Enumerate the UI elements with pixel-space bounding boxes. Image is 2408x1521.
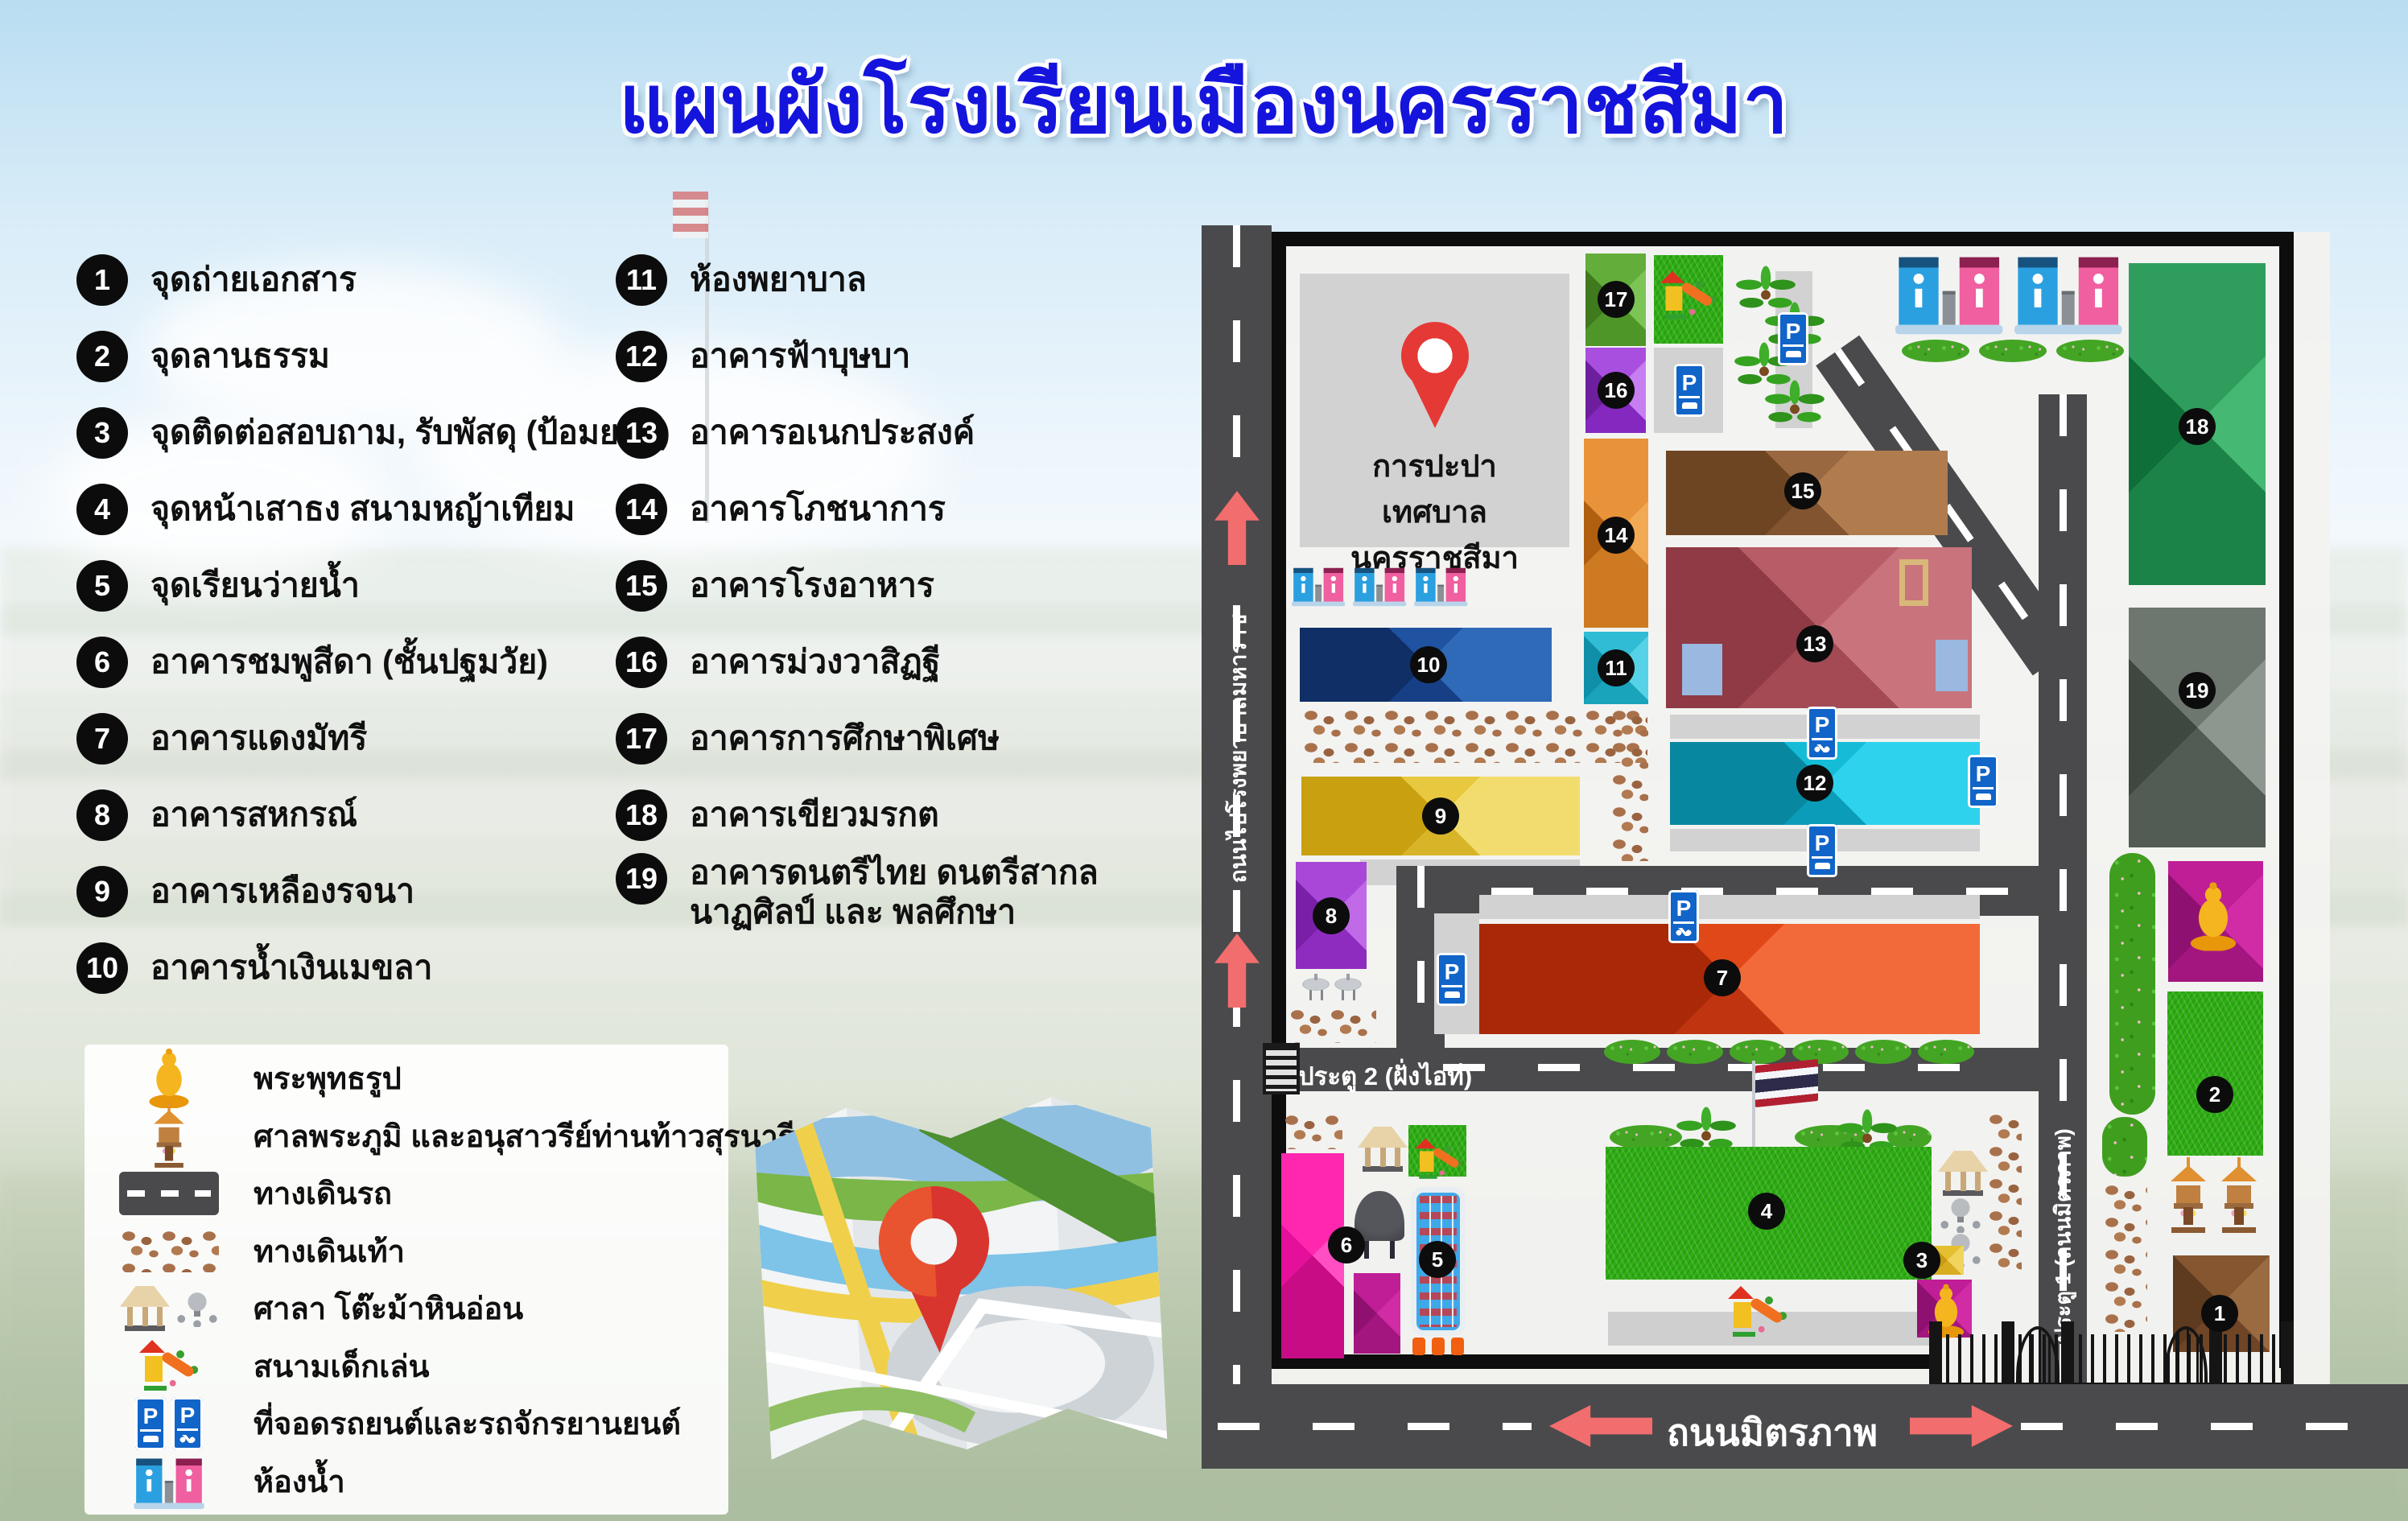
badge-6: 6 (1328, 1226, 1365, 1263)
pavilion-icon (85, 1282, 254, 1335)
legend-item-label: จุดถ่ายเอกสาร (150, 260, 357, 299)
icon-legend-label: ศาลา โต๊ะม้าหินอ่อน (254, 1284, 523, 1333)
school-map: ถนนไปโรงพยาบาลมหาราช การปะปา เทศบาลนครรา… (1202, 225, 2408, 1521)
legend-item-8: 8อาคารสหกรณ์ (76, 777, 670, 853)
toilet-women-door (1385, 568, 1404, 602)
legend-item-12: 12อาคารฟ้าบุษบา (616, 318, 1221, 394)
legend-item-label: จุดหน้าเสาธง สนามหญ้าเทียม (150, 489, 575, 529)
legend-item-label: จุดลานธรรม (150, 336, 330, 376)
toilet-men-door (1354, 568, 1374, 602)
photo-flag (673, 192, 708, 238)
icon-legend-item: สนามเด็กเล่น (85, 1339, 728, 1392)
footpath (1610, 708, 1648, 861)
waterworks-line1: การปะปา (1300, 444, 1569, 490)
toilet-men-door (2018, 258, 2057, 325)
legend-item-label: จุดติดต่อสอบถาม, รับพัสดุ (ป้อมยาม) (150, 413, 670, 452)
legend-item-number: 10 (76, 942, 128, 994)
legend-item-6: 6อาคารชมพูสีดา (ชั้นปฐมวัย) (76, 624, 670, 700)
building-19 (2129, 608, 2266, 847)
legend-item-16: 16อาคารม่วงวาสิฏฐี (616, 624, 1221, 700)
hedge (2102, 1117, 2147, 1177)
parking-car-sign (1437, 953, 1467, 1006)
legend-item-17: 17อาคารการศึกษาพิเศษ (616, 700, 1221, 777)
badge-4: 4 (1748, 1193, 1785, 1230)
page-title: แผนผังโรงเรียนเมืองนครราชสีมา (0, 40, 2408, 168)
icon-legend-item: ทางเดินรถ (85, 1167, 728, 1220)
legend-item-number: 12 (616, 331, 667, 382)
badge-9: 9 (1422, 798, 1459, 835)
pavilion-icon (1938, 1151, 1988, 1196)
walk-strip (1479, 895, 1980, 919)
icon-legend-item: พระพุทธรูป (85, 1052, 728, 1105)
legend-item-9: 9อาคารเหลืองรจนา (76, 853, 670, 929)
footpath (1288, 1008, 1376, 1043)
icon-legend-item: ศาลพระภูมิ และอนุสาวรีย์ท่านท้าวสุรนารี (85, 1109, 728, 1162)
footpath (1282, 1113, 1342, 1149)
sink-icon (1301, 972, 1331, 1001)
sink-icon (1333, 972, 1363, 1001)
legend-item-label: อาคารโภชนาการ (690, 489, 946, 529)
legend-item-number: 9 (76, 866, 128, 917)
toilet-block (1414, 563, 1467, 606)
fence-post (2002, 1321, 2014, 1384)
icon-legend-item: ห้องน้ำ (85, 1454, 728, 1507)
road-dashes (1443, 1064, 2006, 1071)
legend-item-label: จุดเรียนว่ายน้ำ (150, 566, 360, 605)
bin (2062, 291, 2075, 325)
legend-item-label: อาคารอเนกประสงค์ (690, 413, 975, 452)
shrub (1979, 340, 2047, 362)
legend-item-label: อาคารเขียวมรกต (690, 795, 939, 835)
shrub (1730, 1040, 1786, 1064)
icon-legend-label: สนามเด็กเล่น (254, 1342, 429, 1391)
toilet-women-door (1324, 568, 1343, 602)
playground-icon (1414, 1138, 1464, 1179)
infographic-canvas: แผนผังโรงเรียนเมืองนครราชสีมา 1จุดถ่ายเอ… (0, 0, 2408, 1521)
building-13-window (1936, 640, 1968, 691)
spirit-house-icon (85, 1109, 254, 1162)
legend-item-label: อาคารฟ้าบุษบา (690, 336, 910, 376)
footpath (2102, 1183, 2147, 1332)
road-icon (85, 1167, 254, 1220)
legend-item-13: 13อาคารอเนกประสงค์ (616, 394, 1221, 471)
icon-legend-label: ที่จอดรถยนต์และรถจักรยานยนต์ (254, 1399, 681, 1448)
building-13-court (1899, 559, 1928, 606)
lawn-2 (2167, 991, 2263, 1156)
legend-item-18: 18อาคารเขียวมรกต (616, 777, 1221, 853)
legend-item-label: อาคารน้ำเงินเมขลา (150, 948, 432, 987)
icon-legend-panel: พระพุทธรูปศาลพระภูมิ และอนุสาวรีย์ท่านท้… (85, 1045, 728, 1515)
toilet-women-door (1446, 568, 1466, 602)
legend-item-label: อาคารแดงมัทรี (150, 719, 367, 758)
badge-5: 5 (1419, 1241, 1456, 1278)
palm-tree-icon (1765, 380, 1825, 436)
campus-wall-bottom (1272, 1354, 1934, 1369)
shrub (1610, 1125, 1682, 1149)
legend-item-14: 14อาคารโภชนาการ (616, 471, 1221, 547)
legend-column-1: 1จุดถ่ายเอกสาร2จุดลานธรรม3จุดติดต่อสอบถา… (76, 241, 670, 1006)
legend-item-label: อาคารสหกรณ์ (150, 795, 357, 835)
fence-post (2061, 1321, 2074, 1384)
badge-7: 7 (1704, 959, 1741, 996)
toilet-block (1292, 563, 1345, 606)
waterworks-label: การปะปา เทศบาลนครราชสีมา (1300, 444, 1569, 582)
legend-item-number: 18 (616, 789, 667, 841)
legend-item-5: 5จุดเรียนว่ายน้ำ (76, 547, 670, 624)
marble-table-icon (1940, 1196, 1981, 1233)
gate1-label: ประตู 1 (ถนนมิตรภาพ) (2046, 1128, 2080, 1342)
road-dashes (1218, 1423, 1532, 1430)
legend-item-number: 6 (76, 637, 128, 688)
bin (1315, 585, 1322, 602)
playground-icon (85, 1339, 254, 1392)
badge-1: 1 (2201, 1295, 2238, 1332)
footpath (1301, 708, 1647, 763)
legend-item-4: 4จุดหน้าเสาธง สนามหญ้าเทียม (76, 471, 670, 547)
badge-18: 18 (2179, 408, 2216, 445)
icon-legend-label: ห้องน้ำ (254, 1457, 345, 1506)
building-6-annex (1354, 1273, 1400, 1354)
legend-item-label: อาคารเหลืองรจนา (150, 872, 414, 911)
badge-10: 10 (1410, 646, 1447, 683)
legend-item-7: 7อาคารแดงมัทรี (76, 700, 670, 777)
gate2-label: ประตู 2 (ฝั่งไอที) (1298, 1056, 1472, 1096)
building-13-window (1682, 644, 1722, 695)
icon-legend-label: ทางเดินเท้า (254, 1226, 405, 1276)
parking-moto-sign (1668, 890, 1699, 943)
legend-column-2: 11ห้องพยาบาล12อาคารฟ้าบุษบา13อาคารอเนกปร… (616, 241, 1221, 974)
parking-car-sign (1807, 824, 1837, 877)
icon-legend-label: พระพุทธรูป (254, 1053, 402, 1103)
legend-item-15: 15อาคารโรงอาหาร (616, 547, 1221, 624)
buddha-icon (2187, 882, 2241, 950)
badge-12: 12 (1796, 765, 1833, 802)
bin (1437, 585, 1444, 602)
legend-item-number: 1 (76, 254, 128, 306)
legend-item-number: 11 (616, 254, 667, 306)
legend-item-2: 2จุดลานธรรม (76, 318, 670, 394)
legend-item-number: 16 (616, 637, 667, 688)
toilet-block (1353, 563, 1406, 606)
hedge (2109, 853, 2155, 1115)
toilet-block (1895, 248, 2002, 334)
badge-17: 17 (1598, 281, 1635, 318)
parking-car-sign (1778, 312, 1808, 365)
buddha-icon (85, 1052, 254, 1105)
icon-legend-label: ศาลพระภูมิ และอนุสาวรีย์ท่านท้าวสุรนารี (254, 1111, 794, 1160)
playground-icon (1659, 271, 1718, 320)
gate2-gate-icon (1263, 1043, 1300, 1094)
legend-item-label: อาคารชมพูสีดา (ชั้นปฐมวัย) (150, 642, 548, 682)
shrub (1855, 1040, 1911, 1064)
badge-2: 2 (2196, 1076, 2233, 1113)
legend-item-3: 3จุดติดต่อสอบถาม, รับพัสดุ (ป้อมยาม) (76, 394, 670, 471)
location-pin-icon (1396, 322, 1474, 435)
badge-3: 3 (1903, 1242, 1940, 1279)
parking-car-sign (1968, 755, 1998, 808)
legend-item-label: อาคารการศึกษาพิเศษ (690, 719, 1000, 758)
spirit-house-icon (2216, 1157, 2262, 1233)
legend-item-number: 14 (616, 484, 667, 535)
thai-flag-icon (1755, 1059, 1818, 1107)
shrub (1902, 340, 1969, 362)
shrub (1918, 1040, 1974, 1064)
legend-item-11: 11ห้องพยาบาล (616, 241, 1221, 318)
legend-item-number: 8 (76, 789, 128, 841)
parking-moto-sign (1807, 707, 1837, 760)
legend-item-label: อาคารดนตรีไทย ดนตรีสากล นาฏศิลป์ และ พลศ… (690, 853, 1221, 932)
pool-ladder (1451, 1338, 1464, 1355)
shrub (1604, 1040, 1660, 1064)
legend-item-number: 13 (616, 407, 667, 459)
badge-8: 8 (1313, 897, 1350, 934)
spirit-house-icon (2165, 1157, 2212, 1233)
pool-ladder (1412, 1338, 1425, 1355)
school-fence (1934, 1334, 2294, 1387)
badge-11: 11 (1598, 649, 1635, 686)
shrub (1667, 1040, 1723, 1064)
toilet-icon (85, 1454, 254, 1507)
parking-icon (85, 1397, 254, 1450)
shrub (2056, 340, 2124, 362)
legend-item-number: 3 (76, 407, 128, 459)
legend-item-10: 10อาคารน้ำเงินเมขลา (76, 929, 670, 1006)
parking-car-sign (1674, 364, 1705, 417)
legend-item-label: อาคารโรงอาหาร (690, 566, 934, 605)
toilet-men-door (1899, 258, 1938, 325)
badge-15: 15 (1784, 472, 1821, 509)
bin (1376, 585, 1383, 602)
legend-item-number: 15 (616, 560, 667, 612)
toilet-women-door (1960, 258, 1999, 325)
legend-item-label: อาคารม่วงวาสิฏฐี (690, 642, 940, 682)
pool-ladder (1432, 1338, 1445, 1355)
pavilion-icon (1358, 1127, 1408, 1172)
toilet-block (2014, 248, 2121, 334)
road-to-hospital-label: ถนนไปโรงพยาบาลมหาราช (1221, 614, 1256, 883)
folded-map-graphic (738, 1060, 1177, 1484)
icon-legend-item: ศาลา โต๊ะม้าหินอ่อน (85, 1282, 728, 1335)
legend-item-number: 19 (616, 853, 667, 905)
legend-item-number: 2 (76, 331, 128, 382)
legend-item-number: 7 (76, 713, 128, 765)
toilet-women-door (2079, 258, 2118, 325)
icon-legend-label: ทางเดินรถ (254, 1169, 392, 1218)
badge-19: 19 (2179, 672, 2216, 709)
legend-item-number: 5 (76, 560, 128, 612)
badge-13: 13 (1796, 625, 1833, 662)
legend-item-number: 4 (76, 484, 128, 535)
fence-post (1929, 1321, 1942, 1384)
footpath (1986, 1112, 2022, 1273)
footpath-icon (85, 1224, 254, 1277)
fence-post (2281, 1321, 2294, 1384)
legend-item-number: 17 (616, 713, 667, 765)
legend-item-19: 19อาคารดนตรีไทย ดนตรีสากล นาฏศิลป์ และ พ… (616, 853, 1221, 974)
mittraphap-road-label: ถนนมิตรภาพ (1667, 1404, 1878, 1462)
badge-14: 14 (1598, 517, 1635, 554)
bin (1943, 291, 1956, 325)
icon-legend-item: ที่จอดรถยนต์และรถจักรยานยนต์ (85, 1397, 728, 1450)
toilet-men-door (1293, 568, 1313, 602)
toilet-men-door (1416, 568, 1435, 602)
legend-item-label: ห้องพยาบาล (690, 260, 867, 299)
legend-item-1: 1จุดถ่ายเอกสาร (76, 241, 670, 318)
icon-legend-item: ทางเดินเท้า (85, 1224, 728, 1277)
playground-icon (1726, 1286, 1789, 1338)
badge-16: 16 (1598, 372, 1635, 409)
